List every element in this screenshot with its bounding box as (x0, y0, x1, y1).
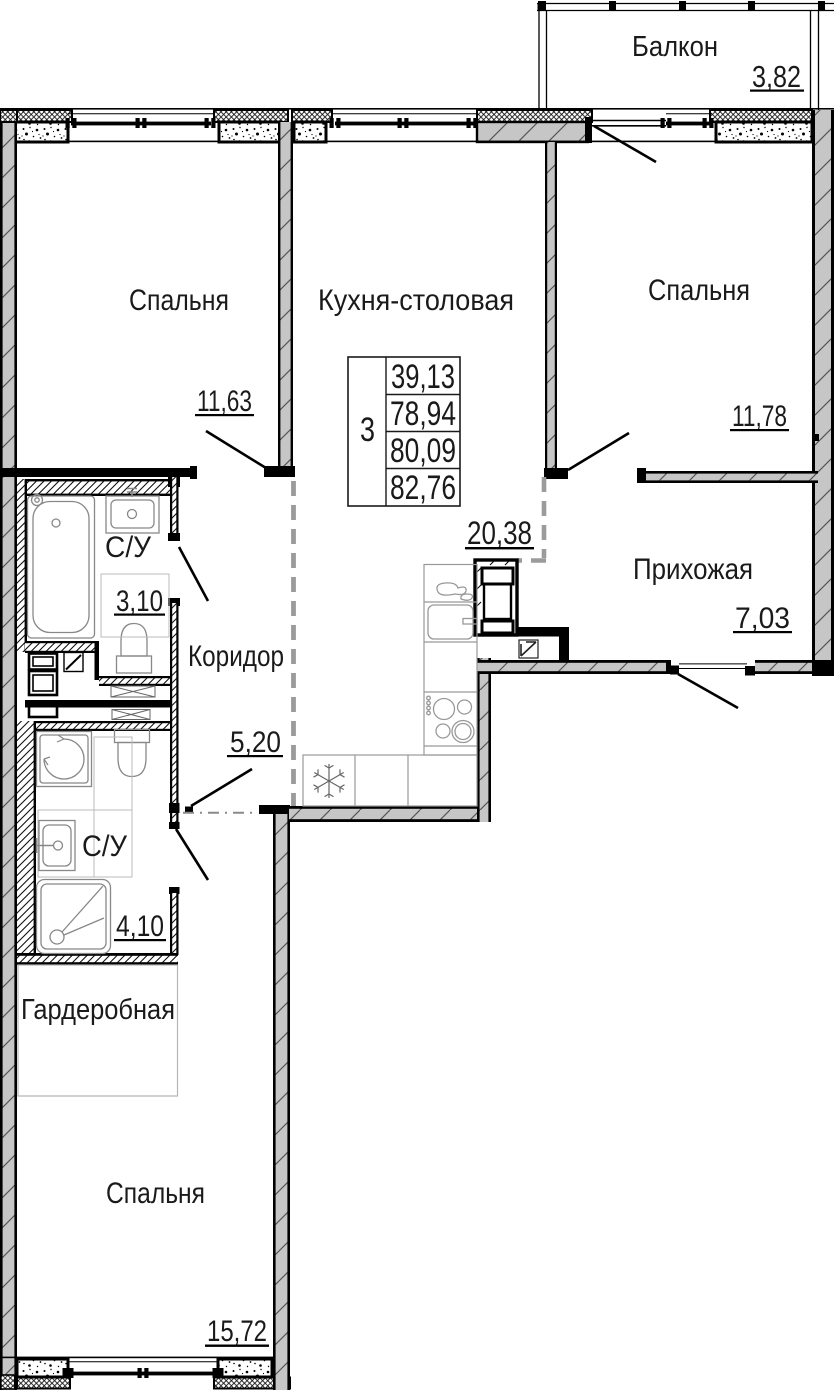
svg-text:39,13: 39,13 (391, 358, 455, 396)
svg-text:Гардеробная: Гардеробная (21, 994, 175, 1026)
svg-text:3,82: 3,82 (752, 59, 801, 94)
svg-text:Спальня: Спальня (129, 284, 229, 317)
svg-text:С/У: С/У (82, 830, 128, 863)
svg-text:С/У: С/У (105, 531, 152, 564)
svg-text:82,76: 82,76 (390, 469, 456, 507)
svg-text:5,20: 5,20 (230, 726, 281, 759)
svg-text:3: 3 (360, 411, 375, 449)
svg-text:78,94: 78,94 (390, 395, 456, 433)
svg-text:4,10: 4,10 (116, 910, 164, 943)
svg-text:Коридор: Коридор (188, 640, 284, 673)
svg-text:Балкон: Балкон (632, 31, 718, 63)
svg-text:11,78: 11,78 (732, 400, 787, 433)
svg-text:80,09: 80,09 (390, 432, 456, 470)
svg-text:Прихожая: Прихожая (633, 553, 753, 586)
svg-text:11,63: 11,63 (197, 385, 252, 418)
svg-text:20,38: 20,38 (467, 515, 532, 551)
svg-text:Спальня: Спальня (106, 1177, 205, 1210)
svg-text:Кухня-столовая: Кухня-столовая (318, 284, 514, 317)
svg-text:3,10: 3,10 (116, 585, 163, 618)
svg-text:15,72: 15,72 (207, 1315, 267, 1348)
svg-text:Спальня: Спальня (648, 274, 750, 307)
svg-text:7,03: 7,03 (735, 602, 790, 635)
